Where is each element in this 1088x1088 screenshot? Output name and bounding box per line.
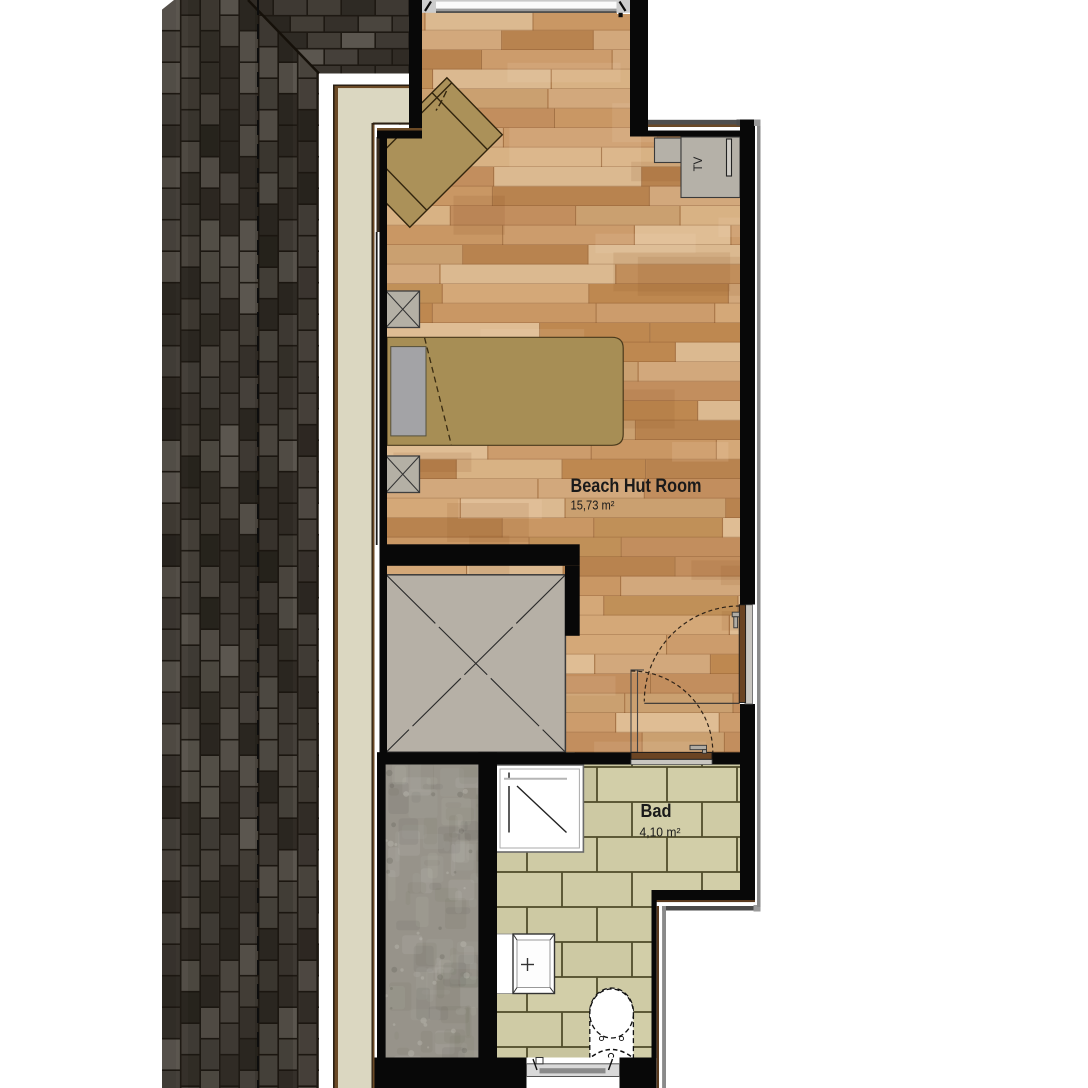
- svg-text:Bad: Bad: [641, 800, 672, 821]
- svg-text:TV: TV: [693, 156, 705, 171]
- svg-text:4,10 m²: 4,10 m²: [640, 825, 682, 840]
- svg-text:15,73 m²: 15,73 m²: [571, 498, 616, 513]
- svg-text:Beach Hut Room: Beach Hut Room: [571, 475, 702, 497]
